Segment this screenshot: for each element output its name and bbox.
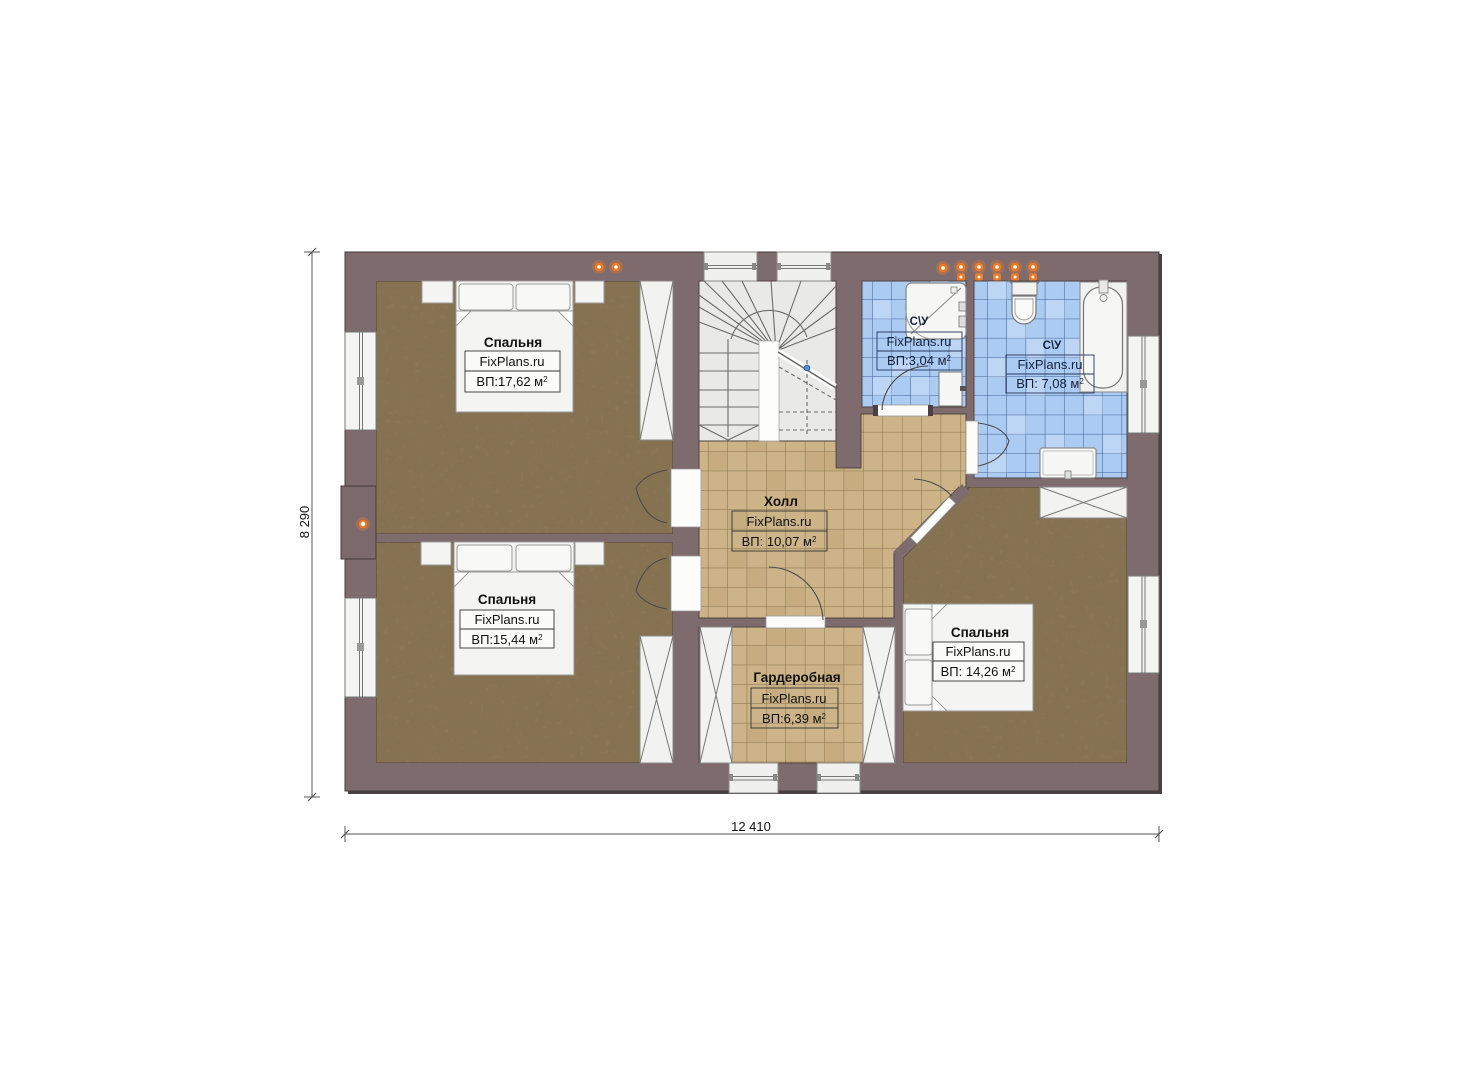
svg-text:FixPlans.ru: FixPlans.ru [761,691,826,706]
svg-text:ВП: 10,07 м2: ВП: 10,07 м2 [742,534,817,549]
svg-text:8 290: 8 290 [297,506,312,539]
svg-text:ВП:6,39 м2: ВП:6,39 м2 [762,711,826,726]
svg-text:FixPlans.ru: FixPlans.ru [1017,357,1082,372]
svg-text:FixPlans.ru: FixPlans.ru [945,644,1010,659]
svg-text:ВП: 7,08 м2: ВП: 7,08 м2 [1016,376,1084,391]
svg-text:12 410: 12 410 [731,819,771,834]
svg-text:FixPlans.ru: FixPlans.ru [479,354,544,369]
svg-text:Спальня: Спальня [484,335,542,350]
svg-text:ВП:15,44 м2: ВП:15,44 м2 [471,632,543,647]
svg-text:FixPlans.ru: FixPlans.ru [474,612,539,627]
svg-text:Гардеробная: Гардеробная [753,670,840,685]
svg-text:С\У: С\У [1043,340,1063,352]
svg-text:Спальня: Спальня [478,592,536,607]
svg-text:FixPlans.ru: FixPlans.ru [746,514,811,529]
svg-text:ВП:3,04 м2: ВП:3,04 м2 [887,353,951,368]
svg-text:С\У: С\У [910,316,930,328]
svg-text:Холл: Холл [764,494,798,509]
svg-text:FixPlans.ru: FixPlans.ru [886,334,951,349]
svg-text:ВП: 14,26 м2: ВП: 14,26 м2 [941,664,1016,679]
svg-text:ВП:17,62 м2: ВП:17,62 м2 [476,374,548,389]
svg-text:Спальня: Спальня [951,625,1009,640]
